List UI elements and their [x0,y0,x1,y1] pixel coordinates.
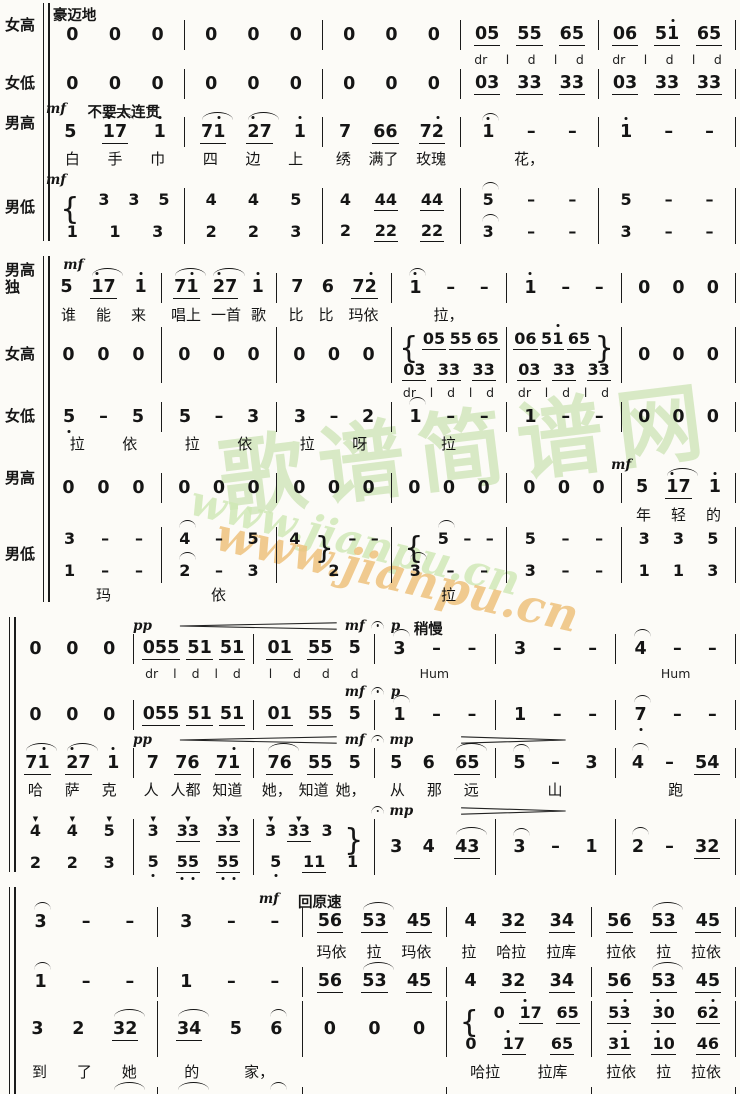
row-bass-notes: 男低mf{33511344522344444222225––3––5––3–– [0,171,738,244]
text-cell [161,504,276,525]
text-cell: 玛 [46,584,161,605]
text-cell [506,504,621,525]
measure-cell: ▼3▼333}5111 [253,819,374,875]
beat-group: 0 [102,704,116,726]
marks-layer: mf [46,171,738,188]
beat-group: 17 [112,1091,138,1094]
text-line: 拉依 [166,434,271,454]
notation-line: 0555151 [139,637,249,660]
beat-group: 0 [151,73,165,95]
beat-group: 0 [637,344,651,366]
measure-cell: 7–– [615,700,736,730]
notation-line: 033333 [604,72,730,95]
tie-arc [178,1009,209,1017]
beat-group: 0 [464,1034,477,1054]
beat-group: 3 [389,836,403,858]
beat-group: 5 [59,276,73,298]
text-line: 哈拉拉库 [451,1062,586,1082]
beat-group: 1 [66,222,79,242]
beat-group: 4 [633,638,647,660]
measure-cell: 3–2 [276,402,391,432]
row-bass-notes: 男低3––1––4–52–34}––2{5––3––5––3––335113 [0,527,738,583]
notation-line: 4–54 [621,752,730,775]
notation-line: 113 [51,222,179,242]
beat-group: 65 [556,1003,580,1024]
beat-group: – [479,561,489,581]
measure-cell: 3–– [12,907,157,937]
beat-group: 65 [475,329,499,350]
beat-group: 0 [96,344,110,366]
beat-group: 1 [638,561,651,581]
text-cell: 花， [460,149,598,170]
beat-group: 0 [65,73,79,95]
crescendo-hairpin [175,736,338,744]
syllable: 拉依 [606,1062,636,1082]
syllable: 来 [131,305,146,325]
notation-line: 033333 [512,360,616,381]
measure-cell: 000 [276,327,391,383]
beat-group: 55 [216,852,240,873]
measure-cell: {055565033333 [391,327,506,383]
divisi-pair: 445223 [190,188,317,244]
divisi-pair: 4}––2 [282,527,386,583]
notation-line: ▼3▼333} [259,821,369,842]
system-4: mf回原速3––3––56534543234565345玛依拉玛依拉哈拉拉库拉依… [0,884,738,1094]
notation-line: 4–5 [167,529,271,549]
notation-line: 000 [328,73,455,95]
syllable: 的 [706,505,721,525]
text-cell [276,504,391,525]
notation-line: 033333 [397,360,501,381]
syllable: d [601,385,609,400]
row-tenor-lyrics: 到了她的家，哈拉拉库拉依拉拉依 [0,1062,738,1083]
dynamic-mark: mf [46,101,66,117]
notation-line: 3–– [466,222,593,242]
text-line: 年轻的 [626,505,731,525]
measure-cell: 3456 [157,1001,302,1057]
beat-group: 33 [654,72,680,95]
beat-group: 0 [342,73,356,95]
notation-line: 000 [17,704,128,726]
beat-group: 33 [696,72,722,95]
syllable: d [562,385,570,400]
beat-group: ▼3 [264,821,277,841]
measure-cell: 5––3–– [506,527,621,583]
beat-group: – [269,911,280,933]
notation-line: 1–– [397,406,501,428]
syllable: 拉 [656,942,671,962]
beat-group: – [587,704,598,726]
notation-line: 3–– [17,911,152,933]
beat-group: 03 [402,360,426,381]
beat-group: 32 [500,910,526,933]
notation-line: 335 [627,529,730,549]
beat-group: 0 [204,24,218,46]
notation-line: 000 [397,477,501,499]
beat-group: 2 [71,1018,85,1040]
divisi-pair: {5––3–– [397,527,501,583]
beat-group: – [347,529,357,549]
beat-group: 0 [61,477,75,499]
beat-group: 56 [606,970,632,993]
beat-group: – [550,836,561,858]
measure-cell: 565345 [302,907,447,937]
system-1: 女高豪迈地000000000055565065165drldlddrldld女低… [0,0,738,244]
notation-line: 1234 [163,1091,297,1094]
part-label [0,384,46,400]
measure-cell: 1–– [157,967,302,997]
beat-group: – [431,638,442,660]
syllable: l [584,385,587,400]
text-line: 山 [500,780,611,800]
text-line: drldld [603,52,731,67]
syllable: 哈 [28,780,43,800]
beat-group: 34 [549,970,575,993]
measure-cell: 71271 [184,117,322,147]
syllable: 唱上 [171,305,201,325]
part-label: 男高 [0,100,46,147]
part-label [0,802,12,875]
beat-group: 71 [24,752,50,775]
text-line: Hum [620,666,731,681]
beat-group: 0 [412,1018,426,1040]
part-label [0,967,12,997]
measure-cell: 71271 [12,748,133,778]
beat-group: 17 [665,476,691,499]
beat-group: ▼3 [147,821,160,841]
measure-cell: 000 [302,1087,447,1094]
beat-group: 0 [212,344,226,366]
notation-line: {055565 [397,329,501,350]
syllable: 拉依 [606,942,636,962]
beat-group: 1 [106,752,120,774]
syllable: 歌 [251,305,266,325]
beat-group: 0 [246,73,260,95]
text-cell: 人人都知道 [133,780,254,801]
beat-group: 76 [174,752,200,775]
beat-group: – [561,529,571,549]
notation-line: ▼4▼4▼5 [17,821,128,841]
notation-line: 3–– [51,529,156,549]
beat-group: ▼4 [29,821,42,841]
syllable: 呀 [352,434,367,454]
tie-arc [114,1082,145,1090]
beat-group: 5 [706,529,719,549]
marks-layer: ppmfmp [12,731,738,748]
beat-group: 45 [406,910,432,933]
beat-group: – [81,971,92,993]
syllable: 跑 [668,780,683,800]
beat-group: 1 [251,276,265,298]
beat-group: 3 [289,222,302,242]
beat-group: 0 [477,477,491,499]
notation-line: 5171 [51,276,156,299]
score-page: 歌谱简谱网 www.jianpu.cn www.jianpu.cn 女高豪迈地0… [0,0,740,1094]
text-line: 拉 [396,434,501,454]
syllable: 从 [390,780,405,800]
beat-group: 0 [102,638,116,660]
beat-group: 0 [323,1018,337,1040]
beat-group: – [214,529,224,549]
beat-group: 3 [524,561,537,581]
notation-line: 000 [17,638,128,660]
syllable: l [545,385,548,400]
beat-group: 0 [362,344,376,366]
text-cell: 她，知道她， [253,780,374,801]
measure-cell: 000 [46,69,184,99]
measure-cell: 033333 [460,69,598,99]
beat-group: 0 [131,477,145,499]
row-tenor-notes: 32323456000{0176501765533062311046 [0,1001,738,1057]
measure-cell: 3–– [157,907,302,937]
beat-group: – [550,752,561,774]
syllable: 能 [96,305,111,325]
beat-group: – [98,406,109,428]
measure-cell: 5–3 [161,402,276,432]
measure-cell: {0176501765 [446,1001,591,1057]
beat-group: – [664,752,675,774]
measure-cell: 3232 [12,1001,157,1057]
beat-group: 17 [90,276,116,299]
text-line: 从那远 [379,780,490,800]
text-cell [157,941,302,962]
beat-group: 5 [62,406,76,428]
beat-group: 0 [292,477,306,499]
beat-group: 3 [246,406,260,428]
divisi-pair: 4444422222 [328,188,455,244]
beat-group: 45 [406,970,432,993]
notation-line: 5–3 [501,752,611,774]
text-cell: 谁能来 [46,304,161,325]
beat-group: 1 [153,121,167,143]
row-alto-lyrics: 拉依拉依拉呀拉 [0,433,738,454]
part-label [0,780,12,801]
measure-cell: 71271 [161,273,276,303]
tie-arc [363,962,394,970]
row-soprano-notes: ppmfp稍慢0000555151015553––3––4–– [0,617,738,664]
syllable: d [192,666,200,681]
notation-line: 5–5 [51,406,156,428]
beat-group: 7 [71,1091,85,1094]
notation-line: 5–– [466,190,593,210]
beat-group: 6 [422,752,436,774]
beat-group: 0 [177,344,191,366]
syllable: 白 [65,149,80,169]
beat-group: – [526,222,536,242]
beat-group: 10 [651,1034,675,1055]
notation-line: 1–– [163,971,297,993]
part-label [0,584,46,605]
syllable: dr [474,52,487,67]
measure-cell: 43234 [446,967,591,997]
text-line: drldld [511,385,616,400]
beat-group: 65 [567,329,591,350]
notation-line: 065165} [512,329,616,350]
measure-cell: 000 [322,20,460,50]
measure-cell: 77671 [133,748,254,778]
syllable: 家， [244,1062,274,1082]
text-line: 拉依 [51,434,156,454]
syllable: d [666,52,674,67]
beat-group: – [462,529,472,549]
row-alto-notes: 女低000000000033333033333 [0,69,738,99]
beat-group: 2 [205,222,218,242]
syllable: d [576,52,584,67]
syllable: 她 [122,1062,137,1082]
beat-group: – [100,529,110,549]
notation-line: 44444 [328,190,455,211]
beat-group: 22 [420,221,444,242]
fermata-mark [371,621,384,629]
tie-arc [438,520,455,528]
text-cell: 哈拉拉库 [446,1062,591,1083]
beat-group: – [526,121,537,143]
row-bass-lyrics: 玛依拉 [0,584,738,605]
notation-line: {01765 [452,1003,586,1024]
notation-line: 4}–– [282,529,386,549]
beat-group: 0 [367,1018,381,1040]
notation-line: 3456 [163,1018,297,1041]
measure-cell: 000 [46,20,184,50]
notation-line: 4–– [621,638,730,660]
measure-cell: 43234 [446,907,591,937]
beat-group: 72 [419,121,445,144]
beat-group: 5 [157,190,170,210]
beat-group: 0 [292,344,306,366]
beat-group: – [560,406,571,428]
dynamic-mark: mf [345,618,365,634]
beat-group: 7 [290,276,304,298]
row-tenor-notes: 男高mf不要太连贯517171271766721––1–– [0,100,738,147]
row-alto-notes: 女低5–55–33–21––1––000 [0,402,738,432]
beat-group: – [672,638,683,660]
beat-group: 0 [65,638,79,660]
measure-cell: 000 [12,634,133,664]
text-cell: 唱上一首歌 [161,304,276,325]
notation-line: 445 [190,190,317,210]
notation-line: 1–– [604,121,730,143]
notation-line: 311046 [597,1034,730,1055]
beat-group: 3 [321,821,334,841]
syllable: 人都 [170,780,200,800]
beat-group: 55 [176,852,200,873]
beat-group: 05 [422,329,446,350]
beat-group: 1 [481,121,495,143]
beat-group: 32 [112,1018,138,1041]
beat-group: 6 [321,276,335,298]
syllable: dr [145,666,158,681]
beat-group: 5 [229,1018,243,1040]
syllable: 玫瑰 [416,149,446,169]
notation-line: 7672 [282,276,386,299]
syllable: 玛 [96,585,111,605]
part-label: 女高 [0,327,46,383]
syllable: dr [518,385,531,400]
beat-group: 0 [706,406,720,428]
text-cell: drldld [391,384,506,400]
beat-group: 0 [671,277,685,299]
text-cell: 拉依 [46,433,161,454]
notation-line: 3232 [17,1018,152,1041]
measure-cell: 4–52–3 [161,527,276,583]
beat-group: 0 [427,24,441,46]
notation-line: 000 [167,477,271,499]
notation-line: 2–3 [167,561,271,581]
beat-group: 71 [200,121,226,144]
notation-line: 03333 [452,1091,586,1094]
measure-cell: 5–3 [495,748,616,778]
beat-group: 53 [606,1091,632,1094]
measure-cell: 000 [506,473,621,503]
syllable: 满了 [368,149,398,169]
text-line: drldld [396,385,501,400]
beat-group: 32 [694,836,720,859]
syllable: d [447,385,455,400]
beat-group: 0 [108,73,122,95]
beat-group: 17 [102,121,128,144]
text-cell: 到了她 [12,1062,157,1083]
row-bass-notes: 1717123400003333533062 [0,1087,738,1094]
beat-group: 3 [151,222,164,242]
beat-group: – [479,406,490,428]
measure-cell: 565345 [302,967,447,997]
measure-cell: 0555151 [133,634,254,664]
tie-arc [482,214,499,222]
marks-layer: ppmfp稍慢 [12,617,738,634]
divisi-pair: 065165}033333 [512,327,616,383]
measure-cell: 000 [302,1001,447,1057]
text-cell [322,51,460,67]
text-cell: 年轻的 [621,504,736,525]
beat-group: – [134,529,144,549]
dynamic-mark: mf [46,172,66,188]
text-cell [598,149,736,170]
beat-group: 01 [266,637,292,660]
text-cell [506,304,621,325]
syllable: 拉依 [691,1062,721,1082]
notation-line: 5–3 [167,406,271,428]
system-2: 男高 独mf51717127176721––1––000谁能来唱上一首歌比比玛依… [0,253,738,605]
beat-group: 53 [650,970,676,993]
measure-cell: 000 [621,273,736,303]
syllable: 拉依 [691,942,721,962]
beat-group: 5 [348,637,362,659]
text-cell: 山 [495,780,616,801]
measure-cell: 5665 [374,748,495,778]
text-cell: 玛依拉玛依 [302,941,447,962]
measure-cell: 1–– [598,117,736,147]
beat-group: 33 [500,1091,526,1094]
measure-cell: 1–– [391,273,506,303]
notation-line: 5–– [604,190,730,210]
syllable: l [644,52,647,67]
text-line: 四边上 [189,149,317,169]
measure-cell: 5–5 [46,402,161,432]
text-cell: 白手巾 [46,149,184,170]
row-tenor-notes: ppmfmp71271776717655556655–34–54 [0,731,738,778]
text-line: 比比玛依 [281,305,386,325]
marks-layer: mf [46,256,738,273]
beat-group: – [125,911,136,933]
beat-group: – [663,121,674,143]
syllable: 依 [211,585,226,605]
text-cell: lddd [253,665,374,681]
syllable: 她， [262,780,292,800]
measure-cell: 1–– [391,402,506,432]
beat-group: – [467,704,478,726]
part-label: 女低 [0,69,46,99]
notation-line: 2–32 [621,836,730,859]
